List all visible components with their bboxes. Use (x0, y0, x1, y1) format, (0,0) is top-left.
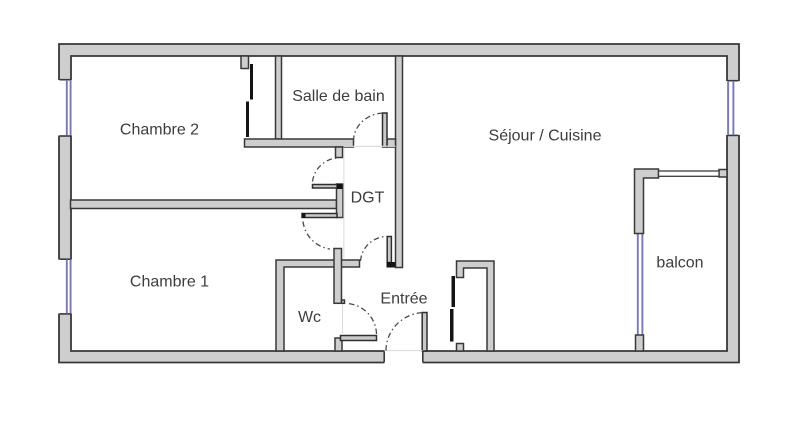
svg-text:Séjour / Cuisine: Séjour / Cuisine (489, 128, 602, 145)
svg-text:Entrée: Entrée (380, 291, 427, 308)
svg-text:Wc: Wc (298, 309, 321, 326)
svg-text:Chambre 1: Chambre 1 (130, 274, 209, 291)
svg-text:DGT: DGT (351, 190, 385, 207)
svg-text:balcon: balcon (656, 255, 703, 272)
svg-text:Chambre 2: Chambre 2 (120, 122, 199, 139)
svg-text:Salle de bain: Salle de bain (292, 88, 385, 105)
